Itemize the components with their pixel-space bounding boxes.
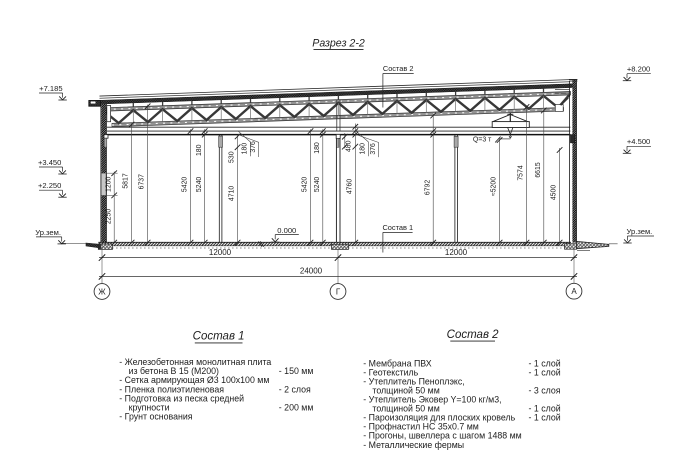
svg-text:- 200 мм: - 200 мм — [279, 402, 314, 412]
svg-text:Разрез 2-2: Разрез 2-2 — [312, 38, 365, 50]
svg-text:6615: 6615 — [535, 162, 542, 177]
svg-text:Ур.зем.: Ур.зем. — [627, 227, 653, 236]
svg-text:- 1 слой: - 1 слой — [529, 367, 561, 377]
svg-text:376: 376 — [370, 143, 377, 155]
svg-text:А: А — [571, 287, 577, 296]
svg-text:24000: 24000 — [300, 267, 323, 276]
svg-text:- 2 слоя: - 2 слоя — [279, 384, 311, 394]
svg-text:Ж: Ж — [98, 287, 106, 296]
svg-text:4710: 4710 — [229, 186, 236, 201]
svg-text:180: 180 — [360, 143, 367, 155]
svg-text:- 3 слоя: - 3 слоя — [529, 385, 561, 395]
svg-text:0.000: 0.000 — [277, 226, 296, 235]
svg-text:Состав 1: Состав 1 — [382, 223, 413, 232]
svg-text:12000: 12000 — [445, 248, 468, 257]
svg-text:5420: 5420 — [182, 177, 189, 192]
svg-text:7574: 7574 — [518, 165, 525, 180]
svg-text:+4.500: +4.500 — [627, 137, 650, 146]
svg-text:2250: 2250 — [105, 209, 112, 224]
svg-text:4500: 4500 — [551, 185, 558, 200]
svg-text:6737: 6737 — [139, 174, 146, 189]
svg-text:1200: 1200 — [105, 176, 112, 191]
svg-text:+8.200: +8.200 — [627, 65, 650, 74]
svg-text:530: 530 — [229, 151, 236, 163]
svg-text:Ур.зем.: Ур.зем. — [35, 228, 61, 237]
svg-text:+7.185: +7.185 — [39, 84, 62, 93]
svg-text:Состав 1: Состав 1 — [193, 331, 245, 343]
svg-text:4760: 4760 — [346, 179, 353, 194]
svg-text:Г: Г — [336, 287, 341, 296]
svg-text:5817: 5817 — [123, 173, 130, 188]
svg-text:180: 180 — [196, 144, 203, 156]
svg-text:+3.450: +3.450 — [38, 158, 61, 167]
svg-text:12000: 12000 — [209, 248, 232, 257]
svg-text:376: 376 — [250, 141, 257, 153]
svg-text:180: 180 — [314, 142, 321, 154]
svg-text:- 150 мм: - 150 мм — [279, 366, 314, 376]
svg-text:480: 480 — [345, 140, 352, 152]
svg-text:5240: 5240 — [196, 177, 203, 192]
svg-text:180: 180 — [241, 143, 248, 155]
svg-text:- Металлические фермы: - Металлические фермы — [363, 440, 464, 450]
svg-text:- 1 слой: - 1 слой — [529, 413, 561, 423]
svg-text:Состав 2: Состав 2 — [447, 329, 499, 341]
svg-text:Состав 2: Состав 2 — [383, 64, 414, 73]
svg-text:5240: 5240 — [314, 177, 321, 192]
svg-text:6792: 6792 — [424, 180, 431, 195]
svg-text:- Грунт основания: - Грунт основания — [119, 411, 192, 421]
svg-text:+2.250: +2.250 — [38, 181, 61, 190]
svg-text:Q=3 т: Q=3 т — [473, 136, 492, 143]
svg-text:5420: 5420 — [302, 177, 309, 192]
svg-text:≈5200: ≈5200 — [491, 177, 498, 196]
